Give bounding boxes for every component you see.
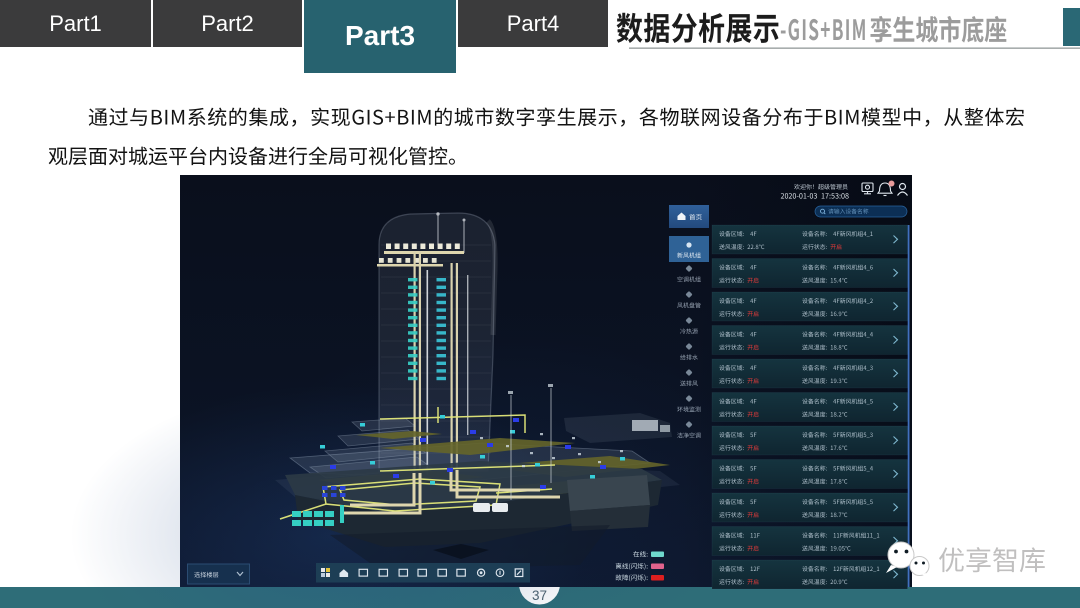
svg-text:Part1: Part1 <box>49 11 102 36</box>
svg-text:Part3: Part3 <box>345 20 415 51</box>
svg-text:Part2: Part2 <box>201 11 254 36</box>
svg-text:Part4: Part4 <box>507 11 560 36</box>
